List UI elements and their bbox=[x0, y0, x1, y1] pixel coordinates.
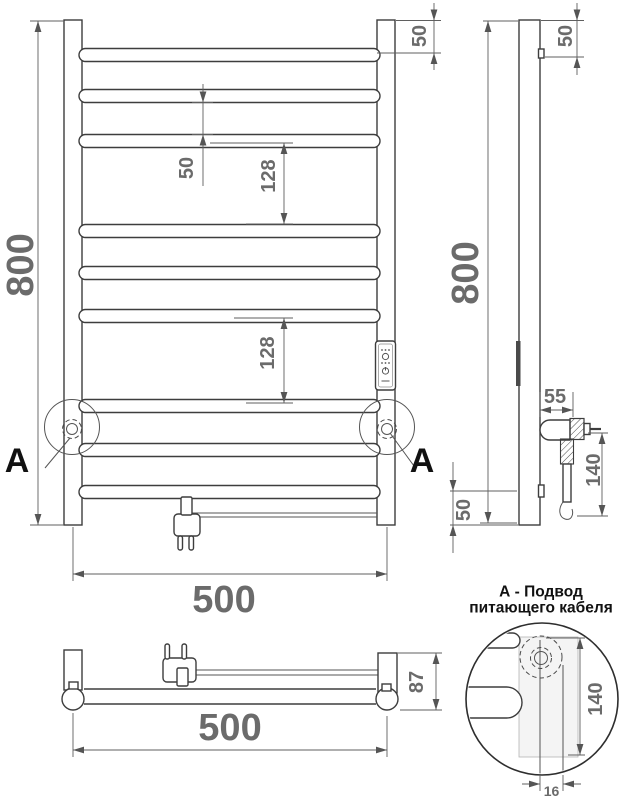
side-view bbox=[516, 20, 601, 525]
dim-front-gap-upper: 128 bbox=[258, 159, 280, 192]
dim-detail-tube-width: 16 bbox=[544, 783, 560, 799]
dimension-arrowhead bbox=[574, 10, 581, 21]
detail-content bbox=[452, 633, 578, 775]
dimension-arrowhead bbox=[431, 10, 438, 21]
dim-front-rung-spacing: 50 bbox=[176, 157, 198, 179]
dimension-arrowhead bbox=[450, 480, 457, 491]
dim-side-cable-length: 140 bbox=[583, 453, 605, 486]
front-power-cable bbox=[174, 497, 377, 550]
bottom-right-tab bbox=[382, 684, 391, 691]
side-top-bracket-tab bbox=[539, 49, 545, 58]
detail-rung-lower bbox=[452, 687, 522, 718]
dim-bottom-depth: 87 bbox=[406, 671, 428, 693]
side-control-panel bbox=[516, 341, 521, 386]
dimension-arrowhead bbox=[450, 525, 457, 536]
dimension-arrowhead bbox=[529, 781, 540, 788]
cable-strain-relief bbox=[561, 439, 574, 464]
front-rung bbox=[79, 400, 380, 413]
dim-front-gap-lower: 128 bbox=[257, 336, 279, 369]
dim-side-height: 800 bbox=[445, 241, 487, 304]
dimension-arrowhead bbox=[485, 512, 492, 523]
dim-bottom-width: 500 bbox=[198, 707, 261, 749]
bottom-left-tab bbox=[69, 682, 78, 689]
detail-title-line1: А - Подвод bbox=[499, 584, 583, 601]
dim-detail-cable-length: 140 bbox=[585, 682, 607, 715]
detail-title-line2: питающего кабеля bbox=[469, 600, 613, 617]
detail-bracket-plate bbox=[519, 637, 578, 757]
bottom-view bbox=[62, 644, 398, 710]
detail-rung-upper bbox=[460, 633, 520, 648]
technical-drawing-towel-rail: 800 50 50 128 128 500 А А 800 50 55 140 … bbox=[0, 0, 620, 800]
front-rung bbox=[79, 486, 380, 499]
dim-front-width: 500 bbox=[192, 579, 255, 621]
dimension-arrowhead bbox=[35, 21, 42, 32]
dim-side-bottom-offset: 50 bbox=[453, 499, 475, 521]
front-rung bbox=[79, 90, 380, 103]
dimension-arrowhead bbox=[376, 747, 387, 754]
front-rung bbox=[79, 135, 380, 148]
detail-marker-left: А bbox=[5, 442, 30, 480]
drawing-canvas: 800 50 50 128 128 500 А А 800 50 55 140 … bbox=[0, 0, 620, 800]
dimension-arrowhead bbox=[431, 53, 438, 64]
side-post bbox=[519, 20, 540, 525]
front-view bbox=[45, 20, 415, 550]
hanging-cable bbox=[563, 464, 571, 502]
cable-gland bbox=[570, 419, 584, 440]
dimension-arrowhead bbox=[73, 571, 84, 578]
side-bottom-bracket-tab bbox=[539, 485, 545, 497]
dimension-arrowhead bbox=[35, 514, 42, 525]
control-panel bbox=[376, 341, 396, 390]
dimension-arrowhead bbox=[433, 699, 440, 710]
dimension-arrowhead bbox=[281, 213, 288, 224]
detail-marker-right: А bbox=[410, 442, 435, 480]
dimension-arrowhead bbox=[73, 747, 84, 754]
front-rung bbox=[79, 225, 380, 238]
cable-end-hook bbox=[560, 502, 573, 519]
dimension-arrowhead bbox=[599, 505, 606, 516]
front-rung bbox=[79, 310, 380, 323]
front-rung bbox=[79, 49, 380, 62]
dimension-arrowhead bbox=[433, 653, 440, 664]
dimension-arrowhead bbox=[574, 57, 581, 68]
dimension-arrowhead bbox=[599, 433, 606, 444]
dimension-arrowhead bbox=[376, 571, 387, 578]
dim-side-bracket-depth: 55 bbox=[544, 386, 566, 408]
front-rung bbox=[79, 444, 380, 457]
plug-icon bbox=[174, 497, 200, 550]
bottom-plug-icon bbox=[163, 644, 196, 686]
dimension-arrowhead bbox=[485, 21, 492, 32]
dimension-arrowhead bbox=[563, 781, 574, 788]
front-rungs bbox=[79, 49, 380, 499]
front-rung bbox=[79, 267, 380, 280]
dim-front-height: 800 bbox=[0, 233, 42, 296]
dim-side-top-offset: 50 bbox=[555, 25, 577, 47]
bottom-left-bracket bbox=[62, 688, 84, 710]
dim-front-top-offset: 50 bbox=[409, 25, 431, 47]
